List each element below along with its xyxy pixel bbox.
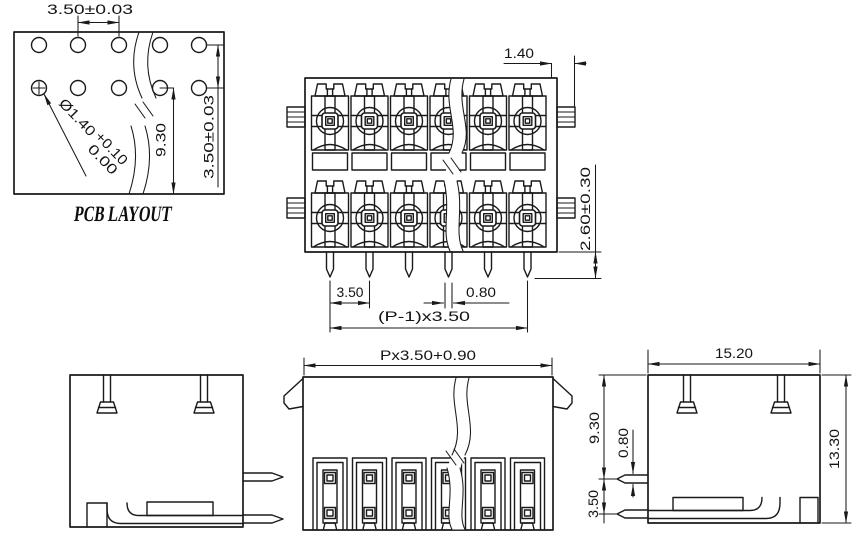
screw-post <box>677 375 697 413</box>
terminal-cell <box>351 84 388 150</box>
front-break-line <box>443 79 466 251</box>
dim-hole-pitch-label: 3.50±0.03 <box>47 1 133 17</box>
dim-tab-width-label: 1.40 <box>504 45 534 61</box>
dim-row-spacing-label: 3.50±0.03 <box>201 95 217 179</box>
hole-diameter-callout: Ø1.40 +0.10 0.00 <box>44 93 132 178</box>
side-view-left <box>70 375 283 527</box>
terminal-cell <box>351 181 388 247</box>
terminal-cell <box>470 181 507 247</box>
dim-row-to-edge: 9.30 <box>153 88 174 194</box>
plug-break-line <box>446 378 471 530</box>
pcb-layout-view: 3.50±0.03 3.50±0.03 9.30 Ø1.40 +0.10 0.0… <box>14 1 224 226</box>
terminal-cell <box>391 84 428 150</box>
flange-right <box>553 379 572 410</box>
drawing-canvas: 3.50±0.03 3.50±0.03 9.30 Ø1.40 +0.10 0.0… <box>0 0 858 546</box>
dim-body-width: 15.20 <box>648 345 820 373</box>
hole-diameter-label: Ø1.40 <box>56 95 100 139</box>
plug-view: Px3.50+0.90 <box>284 347 572 530</box>
dim-pin-spacing: 3.50 <box>585 479 616 523</box>
dim-pin-width-label: 0.80 <box>466 284 496 300</box>
side-tab <box>557 107 575 127</box>
dim-pin-length: 2.60±0.30 <box>535 165 601 279</box>
dim-pin-thickness-label: 0.80 <box>615 428 631 458</box>
dim-pin-spacing-label: 3.50 <box>585 490 601 518</box>
screw-post <box>771 375 791 413</box>
terminal-cell <box>312 181 349 247</box>
screw-post <box>194 375 214 413</box>
plug-slots <box>313 458 545 530</box>
dim-pin-thickness: 0.80 <box>615 428 633 497</box>
dim-top-to-pin-label: 9.30 <box>586 412 602 444</box>
pcb-break-line <box>129 32 156 194</box>
pcb-layout-title: PCB LAYOUT <box>73 201 174 226</box>
dim-pin-pitch-label: 3.50 <box>337 284 364 300</box>
side-housing <box>648 375 820 523</box>
terminal-cell <box>509 84 546 150</box>
dim-pin-pitch: 3.50 <box>330 281 370 332</box>
dim-body-width-label: 15.20 <box>715 345 753 361</box>
dim-body-height-label: 13.30 <box>826 429 842 469</box>
side-tab <box>287 107 305 127</box>
hole-center-mark <box>33 82 45 94</box>
side-tab <box>557 198 575 218</box>
dim-hole-pitch: 3.50±0.03 <box>47 1 133 36</box>
side-housing <box>70 375 243 527</box>
pcb-outline <box>14 32 224 194</box>
side-pins <box>243 473 283 523</box>
front-view: 1.40 2.60±0.30 3.50 0.80 (P-1)x3.50 <box>287 45 601 332</box>
flange-left <box>284 379 303 410</box>
plug-housing <box>303 377 553 530</box>
solder-pins <box>327 252 532 277</box>
terminal-cell <box>312 84 349 150</box>
dim-pin-width: 0.80 <box>424 283 509 308</box>
dim-pin-span-label: (P-1)x3.50 <box>378 308 470 324</box>
screw-post <box>97 375 117 413</box>
dim-overall-width-label: Px3.50+0.90 <box>380 347 476 363</box>
terminal-cell <box>509 181 546 247</box>
side-interior <box>87 502 243 527</box>
dim-overall-width: Px3.50+0.90 <box>304 347 552 375</box>
dim-row-to-edge-label: 9.30 <box>153 123 169 157</box>
dim-body-height: 13.30 <box>822 375 851 523</box>
vent-slots <box>313 153 546 170</box>
side-interior <box>648 498 818 524</box>
pcb-holes <box>32 38 207 96</box>
side-view-right: 15.20 13.30 9.30 0.80 3.50 <box>585 345 851 523</box>
terminal-cell <box>391 181 428 247</box>
dim-row-spacing: 3.50±0.03 <box>201 45 224 187</box>
side-tab <box>287 198 305 218</box>
dim-tab-width: 1.40 <box>504 45 586 107</box>
terminal-cell <box>470 84 507 150</box>
dim-top-to-pin: 9.30 <box>586 375 646 479</box>
dim-pin-length-label: 2.60±0.30 <box>577 167 593 251</box>
screw-bars <box>323 470 535 529</box>
technical-drawing: 3.50±0.03 3.50±0.03 9.30 Ø1.40 +0.10 0.0… <box>0 0 858 546</box>
